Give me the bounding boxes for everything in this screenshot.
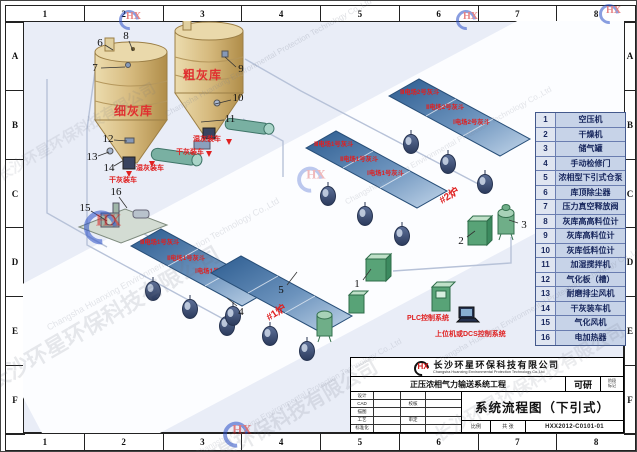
callout-15: 15 (80, 202, 92, 214)
electric-heater (133, 210, 149, 218)
title-block-company-row: HX 长沙环星环保科技有限公司 Changsha Huanxing Enviro… (351, 358, 623, 377)
legend-row: 10灰库低料位计 (536, 244, 625, 259)
scale-label: 比例 (462, 421, 491, 432)
dry-ash-loader (123, 157, 135, 169)
equipment-legend: 1空压机 2干燥机 3储气罐 4手动检修门 5浓相型下引式仓泵 6库顶除尘器 7… (535, 112, 626, 346)
col-label: 5 (321, 6, 400, 22)
company-name-cn: 长沙环星环保科技有限公司 (433, 361, 559, 370)
col-label: 6 (400, 434, 479, 450)
row-label: F (6, 366, 24, 434)
silo-top-duster (183, 21, 191, 30)
legend-no: 6 (536, 186, 556, 200)
col-label: 2 (85, 6, 164, 22)
callout-13: 13 (87, 151, 99, 163)
row-label: C (6, 160, 24, 229)
sheet-label: 共 张 (491, 421, 526, 432)
hopper-label: Ⅱ电场1号灰斗 (340, 154, 379, 163)
callout-4: 4 (238, 306, 244, 318)
title-block-project-row: 正压浓相气力输送系统工程 可研 阶段标记 (351, 377, 623, 392)
hopper-label: Ⅲ电场2号灰斗 (400, 87, 440, 96)
row-label: B (6, 91, 24, 160)
legend-name: 气化风机 (556, 316, 625, 330)
dry-loading-label: 干灰装车 (176, 147, 204, 156)
drawing-title: 系统流程图（下引式） (462, 392, 623, 420)
level-indicator (222, 51, 228, 57)
legend-row: 3储气罐 (536, 142, 625, 157)
legend-no: 2 (536, 128, 556, 142)
legend-row: 8灰库高高料位计 (536, 215, 625, 230)
legend-row: 6库顶除尘器 (536, 186, 625, 201)
legend-no: 4 (536, 157, 556, 171)
legend-name: 灰库高料位计 (556, 229, 625, 243)
legend-name: 干灰装车机 (556, 302, 625, 316)
col-label: 1 (6, 434, 85, 450)
silo-top-duster (105, 38, 114, 51)
col-label: 7 (479, 434, 558, 450)
aeration-plate (125, 138, 134, 143)
row-label: C (625, 160, 635, 229)
col-label: 3 (164, 434, 243, 450)
legend-name: 储气罐 (556, 142, 625, 156)
callout-9: 9 (238, 63, 244, 75)
company-logo-icon: HX (414, 360, 429, 375)
hopper-label: Ⅲ电场1号灰斗 (140, 237, 180, 246)
legend-name: 耐磨排尘风机 (556, 287, 625, 301)
col-label: 8 (557, 434, 635, 450)
fine-silo-label: 细灰库 (114, 103, 153, 118)
callout-3: 3 (521, 219, 527, 231)
callout-2: 2 (458, 235, 464, 247)
legend-row: 9灰库高料位计 (536, 229, 625, 244)
legend-no: 12 (536, 273, 556, 287)
arrow-down-icon (226, 139, 232, 145)
callout-10: 10 (233, 92, 245, 104)
legend-row: 13耐磨排尘风机 (536, 287, 625, 302)
callout-1: 1 (354, 278, 360, 290)
legend-no: 11 (536, 258, 556, 272)
legend-no: 9 (536, 229, 556, 243)
drawing-sheet: 1 2 3 4 5 6 7 8 1 2 3 4 5 6 7 8 A B C D … (0, 0, 637, 452)
coarse-ash-silo (175, 21, 275, 157)
coordinate-strip-left: A B C D E F (5, 21, 25, 435)
legend-name: 浓相型下引式仓泵 (556, 171, 625, 185)
legend-no: 13 (536, 287, 556, 301)
legend-row: 2干燥机 (536, 128, 625, 143)
legend-name: 压力真空释放阀 (556, 200, 625, 214)
callout-8: 8 (123, 30, 129, 42)
company-name-en: Changsha Huanxing Environmental Protecti… (433, 370, 553, 374)
project-name: 正压浓相气力输送系统工程 (351, 377, 565, 391)
dcs-label: 上位机或DCS控制系统 (435, 329, 506, 338)
legend-name: 灰库低料位计 (556, 244, 625, 258)
wet-loading-label: 湿灰装车 (136, 163, 164, 172)
coarse-silo-label: 粗灰库 (183, 67, 222, 82)
callout-11: 11 (225, 113, 236, 125)
air-compressor (366, 254, 391, 281)
legend-no: 5 (536, 171, 556, 185)
row-label: E (6, 297, 24, 366)
col-label: 4 (242, 434, 321, 450)
legend-no: 1 (536, 113, 556, 127)
dcs-computer (457, 307, 479, 322)
col-label: 4 (242, 6, 321, 22)
dry-loading-label: 干灰装车 (109, 175, 137, 184)
legend-no: 3 (536, 142, 556, 156)
callout-16: 16 (111, 186, 123, 198)
row-label: A (625, 22, 635, 91)
plc-cabinet (432, 282, 455, 311)
legend-row: 15气化风机 (536, 316, 625, 331)
legend-name: 干燥机 (556, 128, 625, 142)
row-label: F (625, 366, 635, 434)
hopper-label: Ⅱ电场2号灰斗 (426, 102, 465, 111)
legend-name: 灰库高高料位计 (556, 215, 625, 229)
signature-grid: 设计 CAD校核 描图 工艺审定 标准化 (351, 392, 462, 432)
col-label: 8 (557, 6, 635, 22)
wet-loading-label: 湿灰装车 (193, 134, 221, 143)
hopper-label: Ⅰ电场2号灰斗 (453, 117, 491, 126)
plc-label: PLC控制系统 (407, 313, 449, 322)
vacuum-release-valve (126, 63, 131, 68)
stage-label: 阶段标记 (600, 377, 623, 391)
callout-14: 14 (104, 162, 116, 174)
legend-row: 5浓相型下引式仓泵 (536, 171, 625, 186)
drawing-number: HXX2012-C0101-01 (526, 421, 623, 432)
legend-no: 14 (536, 302, 556, 316)
col-label: 7 (479, 6, 558, 22)
row-label: B (625, 91, 635, 160)
legend-name: 加湿搅拌机 (556, 258, 625, 272)
dryer (468, 216, 492, 245)
legend-row: 16电加热器 (536, 331, 625, 346)
col-label: 6 (400, 6, 479, 22)
col-label: 2 (85, 434, 164, 450)
legend-no: 7 (536, 200, 556, 214)
legend-name: 气化板（槽） (556, 273, 625, 287)
callout-5: 5 (278, 284, 284, 296)
title-block: HX 长沙环星环保科技有限公司 Changsha Huanxing Enviro… (350, 357, 624, 433)
legend-no: 15 (536, 316, 556, 330)
legend-row: 12气化板（槽） (536, 273, 625, 288)
legend-row: 4手动检修门 (536, 157, 625, 172)
legend-name: 电加热器 (556, 331, 625, 346)
stage-value: 可研 (565, 377, 600, 391)
hopper-label: Ⅰ电场1号灰斗 (367, 168, 405, 177)
legend-name: 库顶除尘器 (556, 186, 625, 200)
callout-7: 7 (92, 62, 98, 74)
fan-flange (107, 148, 113, 154)
legend-name: 空压机 (556, 113, 625, 127)
row-label: A (6, 22, 24, 91)
coordinate-strip-bottom: 1 2 3 4 5 6 7 8 (5, 433, 636, 451)
col-label: 3 (164, 6, 243, 22)
legend-row: 14干灰装车机 (536, 302, 625, 317)
legend-row: 1空压机 (536, 113, 625, 128)
col-label: 1 (6, 6, 85, 22)
callout-6: 6 (97, 37, 103, 49)
hopper-label: Ⅲ电场1号灰斗 (314, 139, 354, 148)
legend-row: 11加湿搅拌机 (536, 258, 625, 273)
row-label: D (625, 228, 635, 297)
col-label: 5 (321, 434, 400, 450)
row-label: D (6, 228, 24, 297)
legend-name: 手动检修门 (556, 157, 625, 171)
hopper-label: Ⅱ电场1号灰斗 (167, 253, 206, 262)
legend-no: 10 (536, 244, 556, 258)
callout-12: 12 (103, 133, 114, 145)
row-label: E (625, 297, 635, 366)
legend-row: 7压力真空释放阀 (536, 200, 625, 215)
arrow-down-icon (206, 151, 212, 157)
legend-no: 8 (536, 215, 556, 229)
legend-no: 16 (536, 331, 556, 346)
